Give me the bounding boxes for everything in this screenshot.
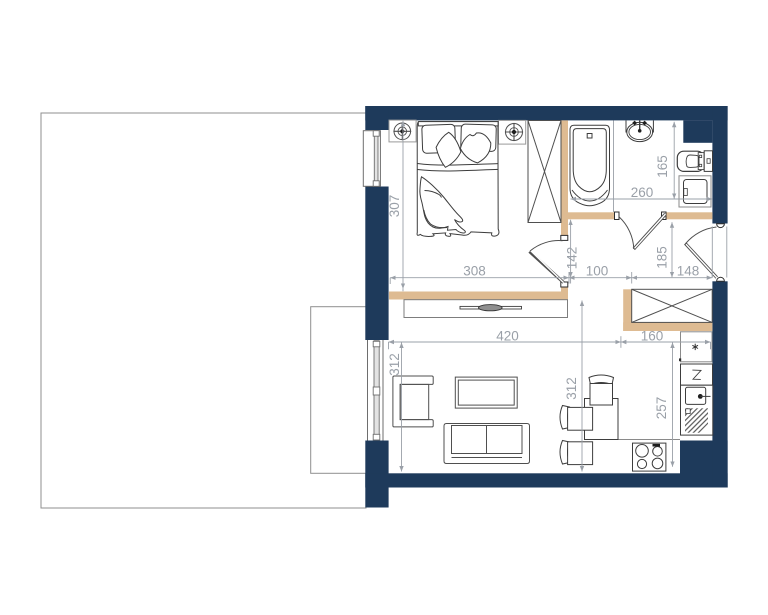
svg-text:260: 260	[631, 185, 654, 200]
svg-text:142: 142	[565, 247, 580, 270]
svg-text:420: 420	[496, 329, 519, 344]
svg-text:307: 307	[387, 195, 402, 218]
svg-text:160: 160	[641, 329, 664, 344]
svg-text:165: 165	[655, 155, 670, 178]
svg-text:308: 308	[463, 264, 486, 279]
svg-text:185: 185	[655, 246, 670, 269]
svg-text:100: 100	[586, 264, 609, 279]
svg-text:312: 312	[564, 377, 579, 400]
svg-text:257: 257	[654, 397, 669, 420]
svg-text:312: 312	[387, 353, 402, 376]
svg-text:148: 148	[677, 264, 700, 279]
